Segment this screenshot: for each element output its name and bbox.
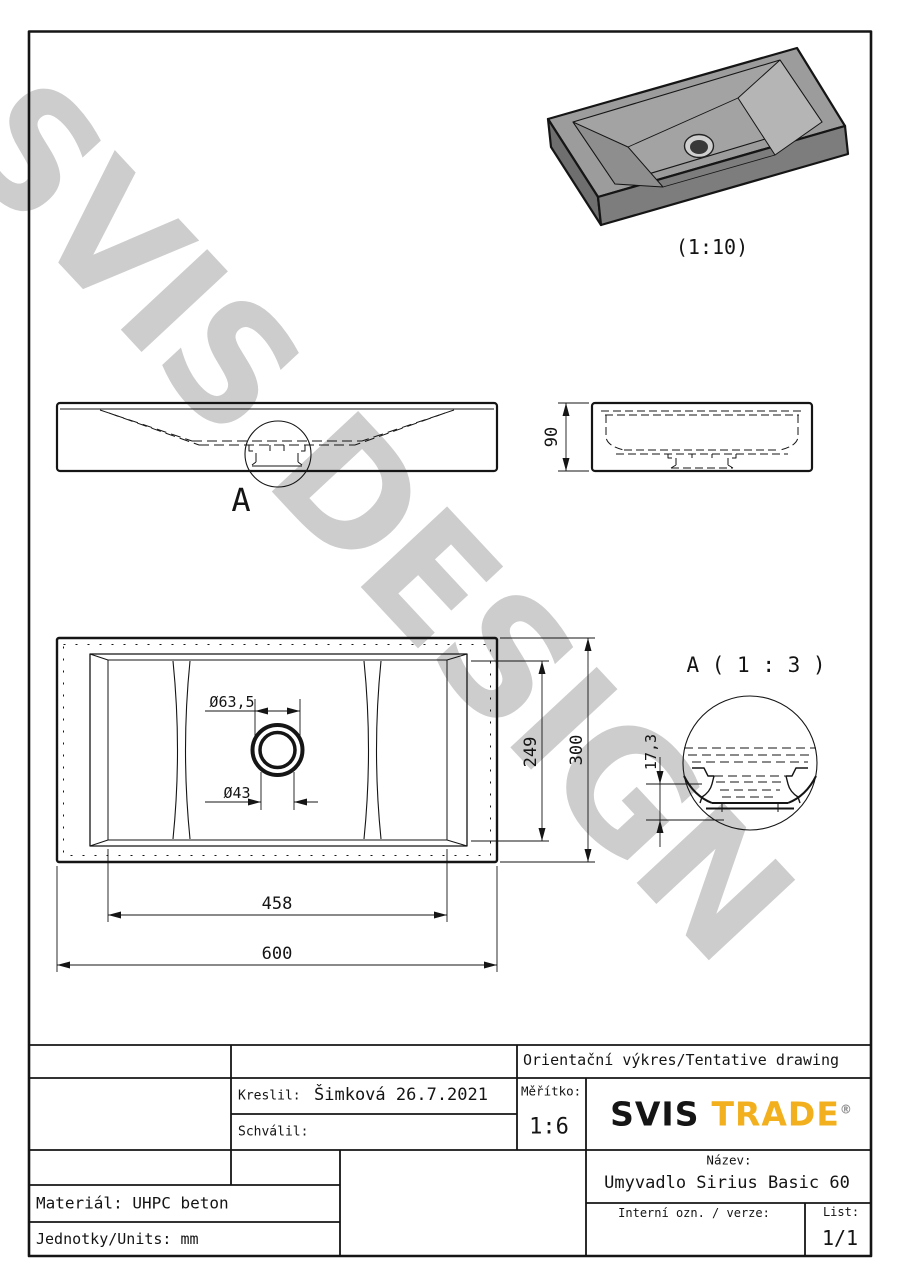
scale-label: Měřítko:	[521, 1084, 581, 1099]
svis-trade-logo: SVISTRADE®	[610, 1095, 852, 1134]
iso-scale-label: (1:10)	[676, 235, 748, 259]
units-label: Jednotky/Units: mm	[36, 1230, 199, 1248]
name-label: Název:	[706, 1153, 751, 1168]
sheet-label: List:	[823, 1205, 859, 1219]
logo-secondary-text: TRADE	[711, 1095, 839, 1134]
drawn-by-label: Kreslil:	[238, 1089, 301, 1104]
internal-id-label: Interní ozn. / verze:	[618, 1206, 770, 1220]
logo-registered-mark-icon: ®	[840, 1103, 852, 1117]
sheet-value: 1/1	[822, 1226, 858, 1250]
name-value: Umyvadlo Sirius Basic 60	[604, 1173, 850, 1193]
dim-label-recess-depth: 17,3	[642, 734, 660, 770]
logo-primary-text: SVIS	[610, 1095, 699, 1134]
document-type-label: Orientační výkres/Tentative drawing	[523, 1051, 839, 1069]
material-label: Materiál: UHPC beton	[36, 1194, 229, 1213]
dim-label-height: 90	[542, 427, 562, 447]
detail-marker-label: A	[231, 481, 250, 519]
dim-label-drain-outer: Ø63,5	[209, 693, 254, 711]
dim-label-drain-inner: Ø43	[223, 784, 250, 802]
dim-label-depth: 300	[567, 735, 587, 766]
dim-label-basin-length: 249	[521, 737, 541, 768]
dim-label-basin-width: 458	[262, 894, 293, 914]
approved-by-label: Schválil:	[238, 1125, 308, 1140]
drawn-by-value: Šimková 26.7.2021	[314, 1085, 488, 1105]
detail-view-title: A ( 1 : 3 )	[686, 653, 825, 677]
scale-value: 1:6	[529, 1115, 569, 1140]
dim-label-width: 600	[262, 944, 293, 964]
